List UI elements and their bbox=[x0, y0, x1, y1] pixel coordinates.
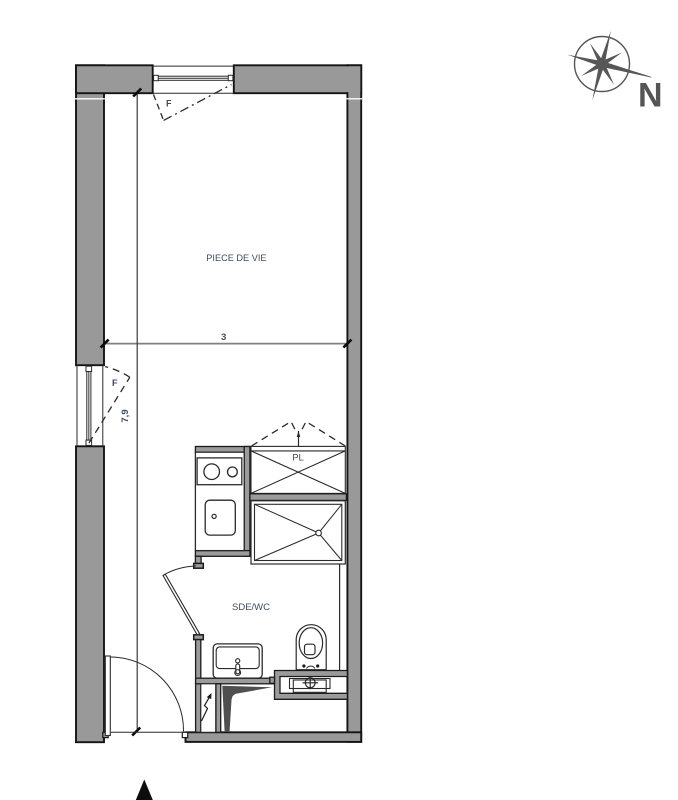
svg-text:PL: PL bbox=[292, 453, 304, 464]
svg-text:3: 3 bbox=[221, 332, 226, 343]
svg-text:F: F bbox=[112, 378, 118, 388]
svg-text:7,9: 7,9 bbox=[120, 409, 131, 422]
svg-text:F: F bbox=[166, 99, 172, 109]
svg-text:PIECE DE VIE: PIECE DE VIE bbox=[206, 253, 266, 263]
svg-text:N: N bbox=[638, 77, 663, 115]
svg-text:SDE/WC: SDE/WC bbox=[232, 602, 270, 613]
